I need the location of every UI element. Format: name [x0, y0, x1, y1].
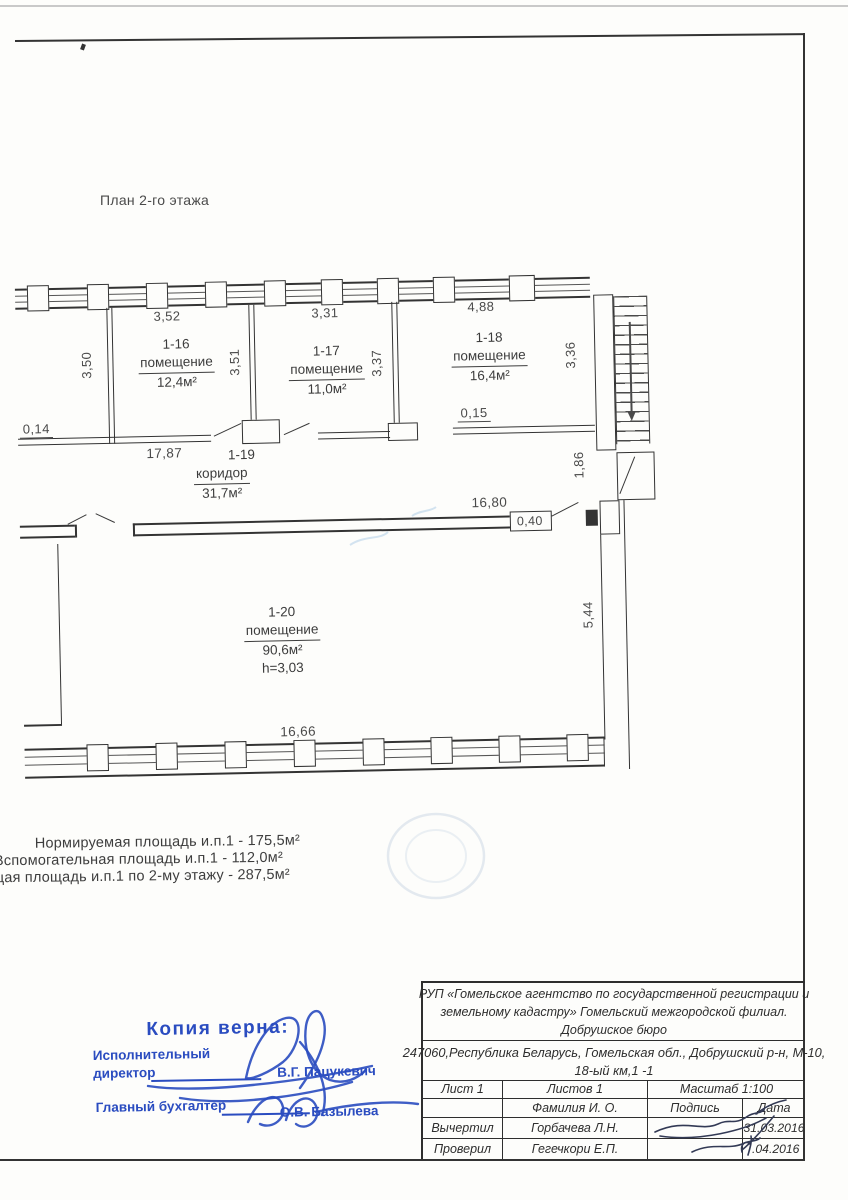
door-leaf — [68, 514, 87, 525]
wall-thickness-box: 0,40 — [510, 511, 552, 532]
dim-corridor-width-right: 1,86 — [571, 451, 587, 478]
stamp-role-director-line1: Исполнительный — [93, 1046, 211, 1063]
dim-wall-thickness-right: 0,15 — [457, 405, 490, 423]
org-name-line: Добрушское бюро — [423, 1022, 805, 1038]
row-role: Проверил — [423, 1139, 502, 1158]
wall-block — [599, 500, 620, 534]
room-label-1-17: 1-17 помещение 11,0м² — [278, 341, 375, 399]
wall-pier — [377, 278, 400, 304]
scan-edge — [0, 5, 848, 7]
scale-label: Масштаб 1:100 — [648, 1080, 805, 1098]
hall-wall-line — [133, 515, 552, 525]
dim-room-1-18-width: 4,88 — [467, 299, 494, 315]
dim-wall-thickness-hall: 0,40 — [517, 514, 543, 529]
wall-pier — [264, 280, 287, 306]
wall-pier — [498, 735, 521, 762]
org-name-line: РУП «Гомельское агентство по государстве… — [423, 986, 805, 1002]
wall-block — [586, 510, 598, 526]
stairs-down-arrow-icon — [627, 412, 635, 421]
wall-cap — [603, 737, 605, 767]
corridor-wall-line — [318, 431, 390, 434]
room-type: помещение — [451, 346, 528, 368]
stamp-role-accountant: Главный бухгалтер — [96, 1098, 227, 1115]
hall-wall-line — [133, 526, 552, 537]
wall-pier — [293, 740, 316, 767]
scan-speck — [80, 43, 86, 50]
room-id: 1-17 — [278, 341, 374, 361]
corridor-wall-line — [453, 425, 595, 429]
column-header-date: Дата — [743, 1099, 805, 1117]
dim-room-1-18-depth: 3,36 — [563, 342, 579, 369]
stair-treads — [613, 296, 650, 445]
hall-wall-line — [20, 536, 75, 539]
row-name: Горбачева Л.Н. — [503, 1118, 647, 1138]
wall-pier — [27, 285, 50, 311]
dim-hall-depth: 5,44 — [580, 601, 596, 628]
room-id: 1-19 — [166, 445, 276, 465]
wall-pier — [321, 279, 344, 305]
title-block-line — [421, 1040, 805, 1041]
room-type: помещение — [138, 353, 215, 375]
corridor-wall-line — [318, 437, 390, 440]
wall-pier — [155, 743, 178, 770]
room-type: помещение — [288, 359, 365, 381]
room-ceiling-height: h=3,03 — [235, 658, 331, 678]
room-label-1-19: 1-19 коридор 31,7м² — [166, 445, 277, 503]
room-area: 11,0м² — [279, 379, 375, 399]
sheets-total: Листов 1 — [503, 1080, 647, 1098]
building-outer-wall — [623, 500, 630, 769]
area-summary: Нормируемая площадь и.п.1 - 175,5м² Вспо… — [0, 832, 360, 887]
title-block-border — [421, 981, 805, 983]
dim-hall-wall-length: 16,80 — [471, 495, 507, 511]
hall-left-wall — [57, 544, 62, 726]
dim-bottom-wall-length: 16,66 — [280, 724, 316, 740]
wall-pier — [146, 283, 169, 309]
wall-pier — [224, 741, 247, 768]
dim-wall-1-16-1-17: 3,51 — [227, 349, 243, 376]
partition-wall — [106, 308, 115, 444]
faint-round-stamp — [388, 814, 484, 898]
object-address-line: 247060,Республика Беларусь, Гомельская о… — [423, 1044, 805, 1060]
door-leaf — [551, 502, 578, 517]
column-header-signature: Подпись — [648, 1099, 742, 1117]
signature-line — [151, 1078, 261, 1082]
room-area: 90,6м² — [234, 640, 330, 660]
wall-pier — [430, 737, 453, 764]
room-id: 1-20 — [234, 602, 330, 622]
hall-wall-line — [20, 525, 75, 528]
org-name-line: земельному кадастру» Гомельский межгород… — [423, 1004, 805, 1020]
stair-landing — [616, 451, 655, 500]
hall-right-wall — [600, 535, 606, 740]
room-area: 31,7м² — [167, 483, 277, 503]
room-area: 12,4м² — [129, 372, 225, 392]
dim-room-1-16-width: 3,52 — [153, 308, 180, 324]
dim-room-1-16-depth: 3,50 — [79, 352, 95, 379]
corridor-wall-line — [453, 431, 595, 435]
floor-plan-drawing: 0,40 3,52 3,31 4,88 — [15, 265, 671, 793]
room-id: 1-18 — [441, 328, 537, 348]
page-title: План 2-го этажа — [100, 192, 209, 208]
wall-pier — [87, 284, 110, 310]
wall-pier — [86, 744, 109, 771]
door-leaf — [214, 423, 242, 437]
object-address-line: 18-ый км,1 -1 — [423, 1062, 805, 1078]
partition-wall — [248, 305, 256, 420]
wall-pier — [362, 738, 385, 765]
wall-pier — [509, 275, 536, 302]
door-leaf — [95, 513, 115, 523]
column-header-name: Фамилия И. О. — [503, 1099, 647, 1117]
wall-pilaster — [388, 422, 418, 441]
row-date: .04.2016 — [752, 1139, 805, 1158]
copy-certification-stamp: Копия верна: Исполнительный директор В.Г… — [0, 1004, 420, 1011]
scanned-floor-plan-page: План 2-го этажа — [0, 0, 848, 1200]
dim-wall-thickness-left: 0,14 — [20, 421, 53, 439]
room-type: коридор — [194, 464, 250, 485]
room-label-1-18: 1-18 помещение 16,4м² — [441, 328, 538, 386]
wall-pier — [566, 734, 589, 761]
room-label-1-20: 1-20 помещение 90,6м² h=3,03 — [234, 602, 332, 678]
dim-room-1-17-width: 3,31 — [311, 305, 338, 321]
room-label-1-16: 1-16 помещение 12,4м² — [128, 334, 225, 392]
room-area: 16,4м² — [442, 366, 538, 386]
door-leaf — [284, 423, 310, 436]
frame-top-line — [15, 33, 805, 42]
frame-bottom-line — [0, 1159, 805, 1161]
row-role: Вычертил — [423, 1118, 502, 1138]
stamp-name-accountant: О.В. Базылева — [280, 1103, 379, 1120]
room-id: 1-16 — [128, 334, 224, 354]
wall-pier — [205, 281, 228, 307]
sheet-number: Лист 1 — [423, 1080, 502, 1098]
summary-line: Общая площадь и.п.1 по 2-му этажу - 287,… — [0, 866, 332, 887]
hall-left-wall-stub — [24, 724, 61, 726]
room-type: помещение — [244, 620, 321, 642]
wall-line — [25, 765, 605, 779]
wall-pier — [433, 277, 456, 303]
wall-pilaster — [242, 419, 280, 444]
hall-wall-cap — [75, 525, 77, 538]
stamp-title: Копия верна: — [146, 1017, 289, 1041]
stamp-role-director-line2: директор — [93, 1065, 156, 1081]
stamp-name-director: В.Г. Пацукевич — [277, 1063, 376, 1080]
top-window-wall — [15, 265, 660, 279]
row-date: 31.03.2016 — [743, 1118, 805, 1138]
hall-wall-cap — [133, 523, 135, 536]
partition-wall — [391, 302, 400, 423]
row-name: Гегечкори Е.П. — [503, 1139, 647, 1158]
